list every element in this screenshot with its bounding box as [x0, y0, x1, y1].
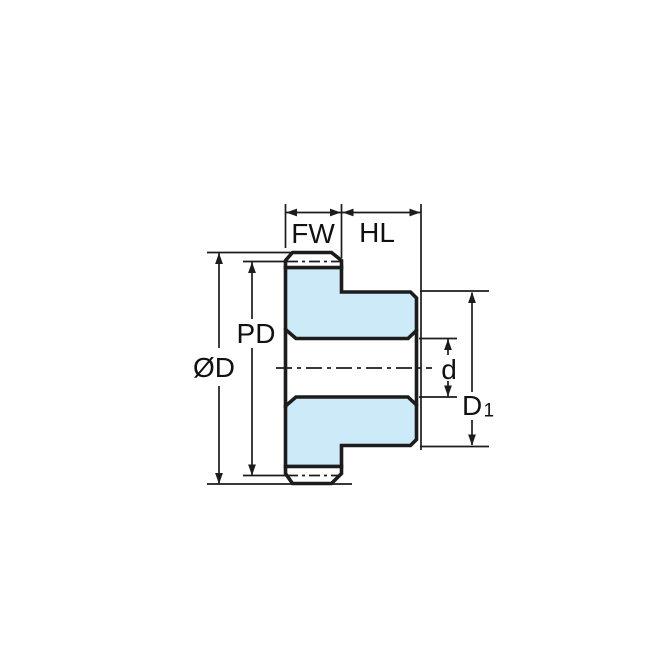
arrow-hub-top	[468, 292, 476, 303]
arrow-hub-bottom	[468, 435, 476, 446]
label-hub-length: HL	[359, 217, 395, 248]
gear-upper-body	[286, 268, 417, 339]
arrow-pd-bottom	[248, 465, 256, 476]
label-hub-diameter-subscript: 1	[484, 401, 495, 422]
gear-top-tooth	[286, 253, 342, 268]
label-pitch-diameter: PD	[237, 318, 276, 349]
arrow-fw-left	[286, 209, 297, 217]
arrow-od-top	[215, 253, 223, 264]
gear-cross-section-drawing: FW HL PD ØD d D 1	[0, 0, 670, 670]
arrow-bore-top	[444, 339, 452, 350]
label-face-width: FW	[291, 218, 335, 249]
label-bore-diameter: d	[441, 354, 457, 385]
arrow-hl-right	[410, 209, 421, 217]
arrow-bore-bottom	[444, 386, 452, 397]
gear-lower-body	[286, 397, 417, 467]
arrow-od-bottom	[215, 473, 223, 484]
arrow-fw-right	[330, 209, 341, 217]
label-hub-diameter: D	[462, 390, 482, 421]
arrow-pd-top	[248, 262, 256, 273]
gear-dimension-diagram: FW HL PD ØD d D 1	[0, 0, 670, 670]
arrow-hl-left	[343, 209, 354, 217]
label-outer-diameter: ØD	[193, 352, 235, 383]
